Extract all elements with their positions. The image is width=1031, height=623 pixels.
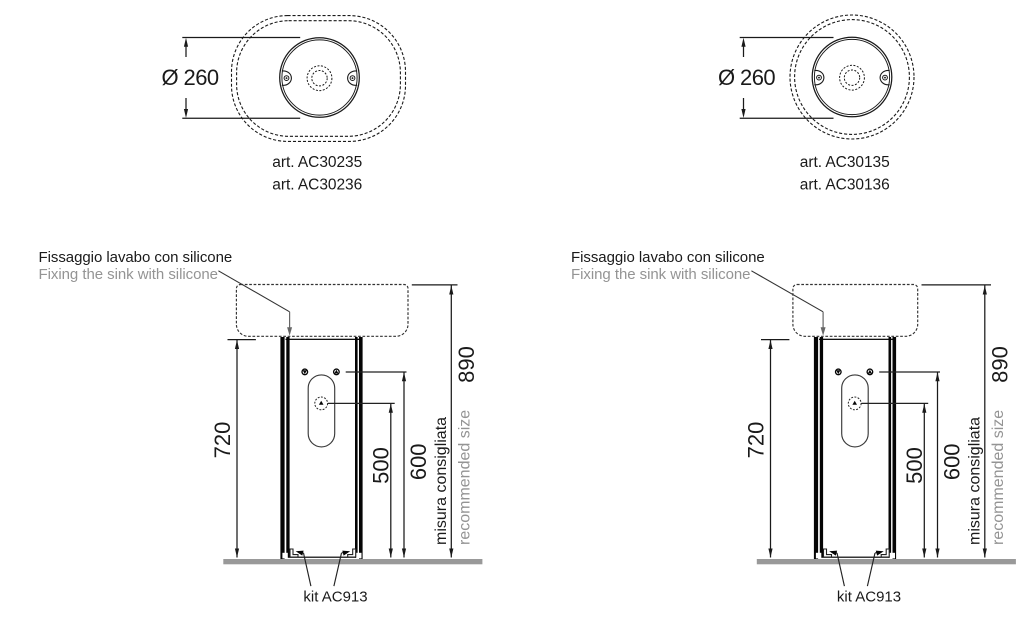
svg-text:Ø 260: Ø 260 bbox=[162, 65, 219, 90]
svg-text:recommended size: recommended size bbox=[457, 410, 474, 545]
svg-text:720: 720 bbox=[743, 422, 768, 459]
svg-text:Fixing the sink with silicone: Fixing the sink with silicone bbox=[39, 266, 218, 283]
svg-text:500: 500 bbox=[902, 447, 927, 484]
svg-text:art. AC30135: art. AC30135 bbox=[800, 154, 890, 171]
svg-text:500: 500 bbox=[368, 447, 393, 484]
svg-text:art. AC30136: art. AC30136 bbox=[800, 177, 890, 194]
svg-text:misura consigliata: misura consigliata bbox=[433, 417, 450, 545]
svg-text:600: 600 bbox=[406, 443, 431, 480]
svg-text:art. AC30235: art. AC30235 bbox=[272, 154, 362, 171]
svg-text:600: 600 bbox=[939, 443, 964, 480]
svg-text:kit AC913: kit AC913 bbox=[303, 589, 367, 606]
svg-text:Fissaggio lavabo con silicone: Fissaggio lavabo con silicone bbox=[571, 249, 765, 266]
svg-text:Fixing the sink with silicone: Fixing the sink with silicone bbox=[571, 266, 750, 283]
svg-text:recommended size: recommended size bbox=[990, 410, 1007, 545]
svg-text:art. AC30236: art. AC30236 bbox=[272, 177, 362, 194]
svg-text:Ø 260: Ø 260 bbox=[718, 65, 775, 90]
svg-text:kit AC913: kit AC913 bbox=[837, 589, 901, 606]
svg-text:890: 890 bbox=[454, 346, 479, 383]
svg-text:Fissaggio lavabo con silicone: Fissaggio lavabo con silicone bbox=[39, 249, 233, 266]
svg-text:720: 720 bbox=[210, 422, 235, 459]
svg-text:misura consigliata: misura consigliata bbox=[967, 417, 984, 545]
svg-text:890: 890 bbox=[988, 346, 1013, 383]
